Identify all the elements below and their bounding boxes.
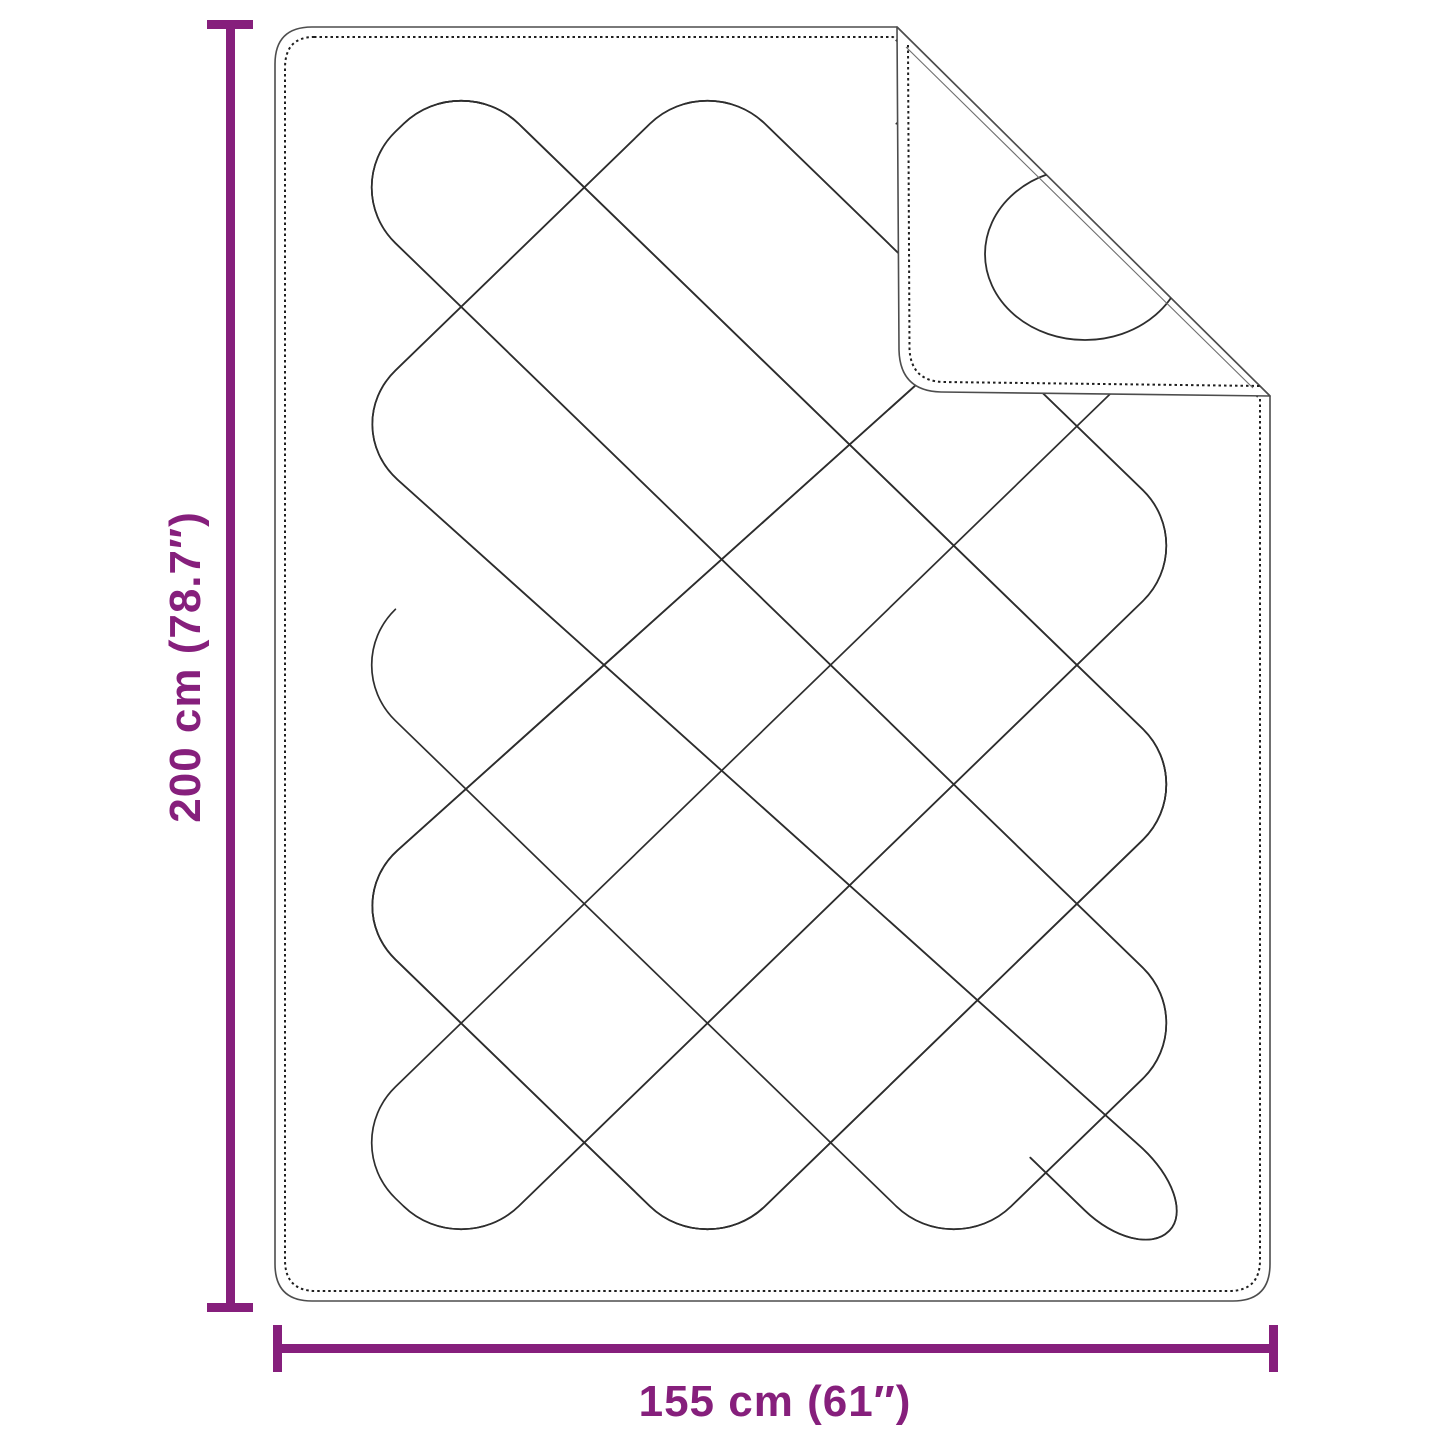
width-dimension-label: 155 cm (61″) xyxy=(639,1377,912,1427)
height-dimension-line xyxy=(226,27,235,1305)
width-dimension-line xyxy=(277,1344,1273,1353)
blanket-outline xyxy=(275,27,1270,1301)
product-dimension-diagram: 200 cm (78.7″) 155 cm (61″) xyxy=(0,0,1445,1445)
width-dimension-cap-right xyxy=(1269,1325,1278,1372)
blanket-illustration xyxy=(0,0,1445,1445)
height-dimension-label: 200 cm (78.7″) xyxy=(161,511,211,822)
height-dimension-cap-bottom xyxy=(207,1303,253,1312)
folded-corner xyxy=(897,27,1270,396)
